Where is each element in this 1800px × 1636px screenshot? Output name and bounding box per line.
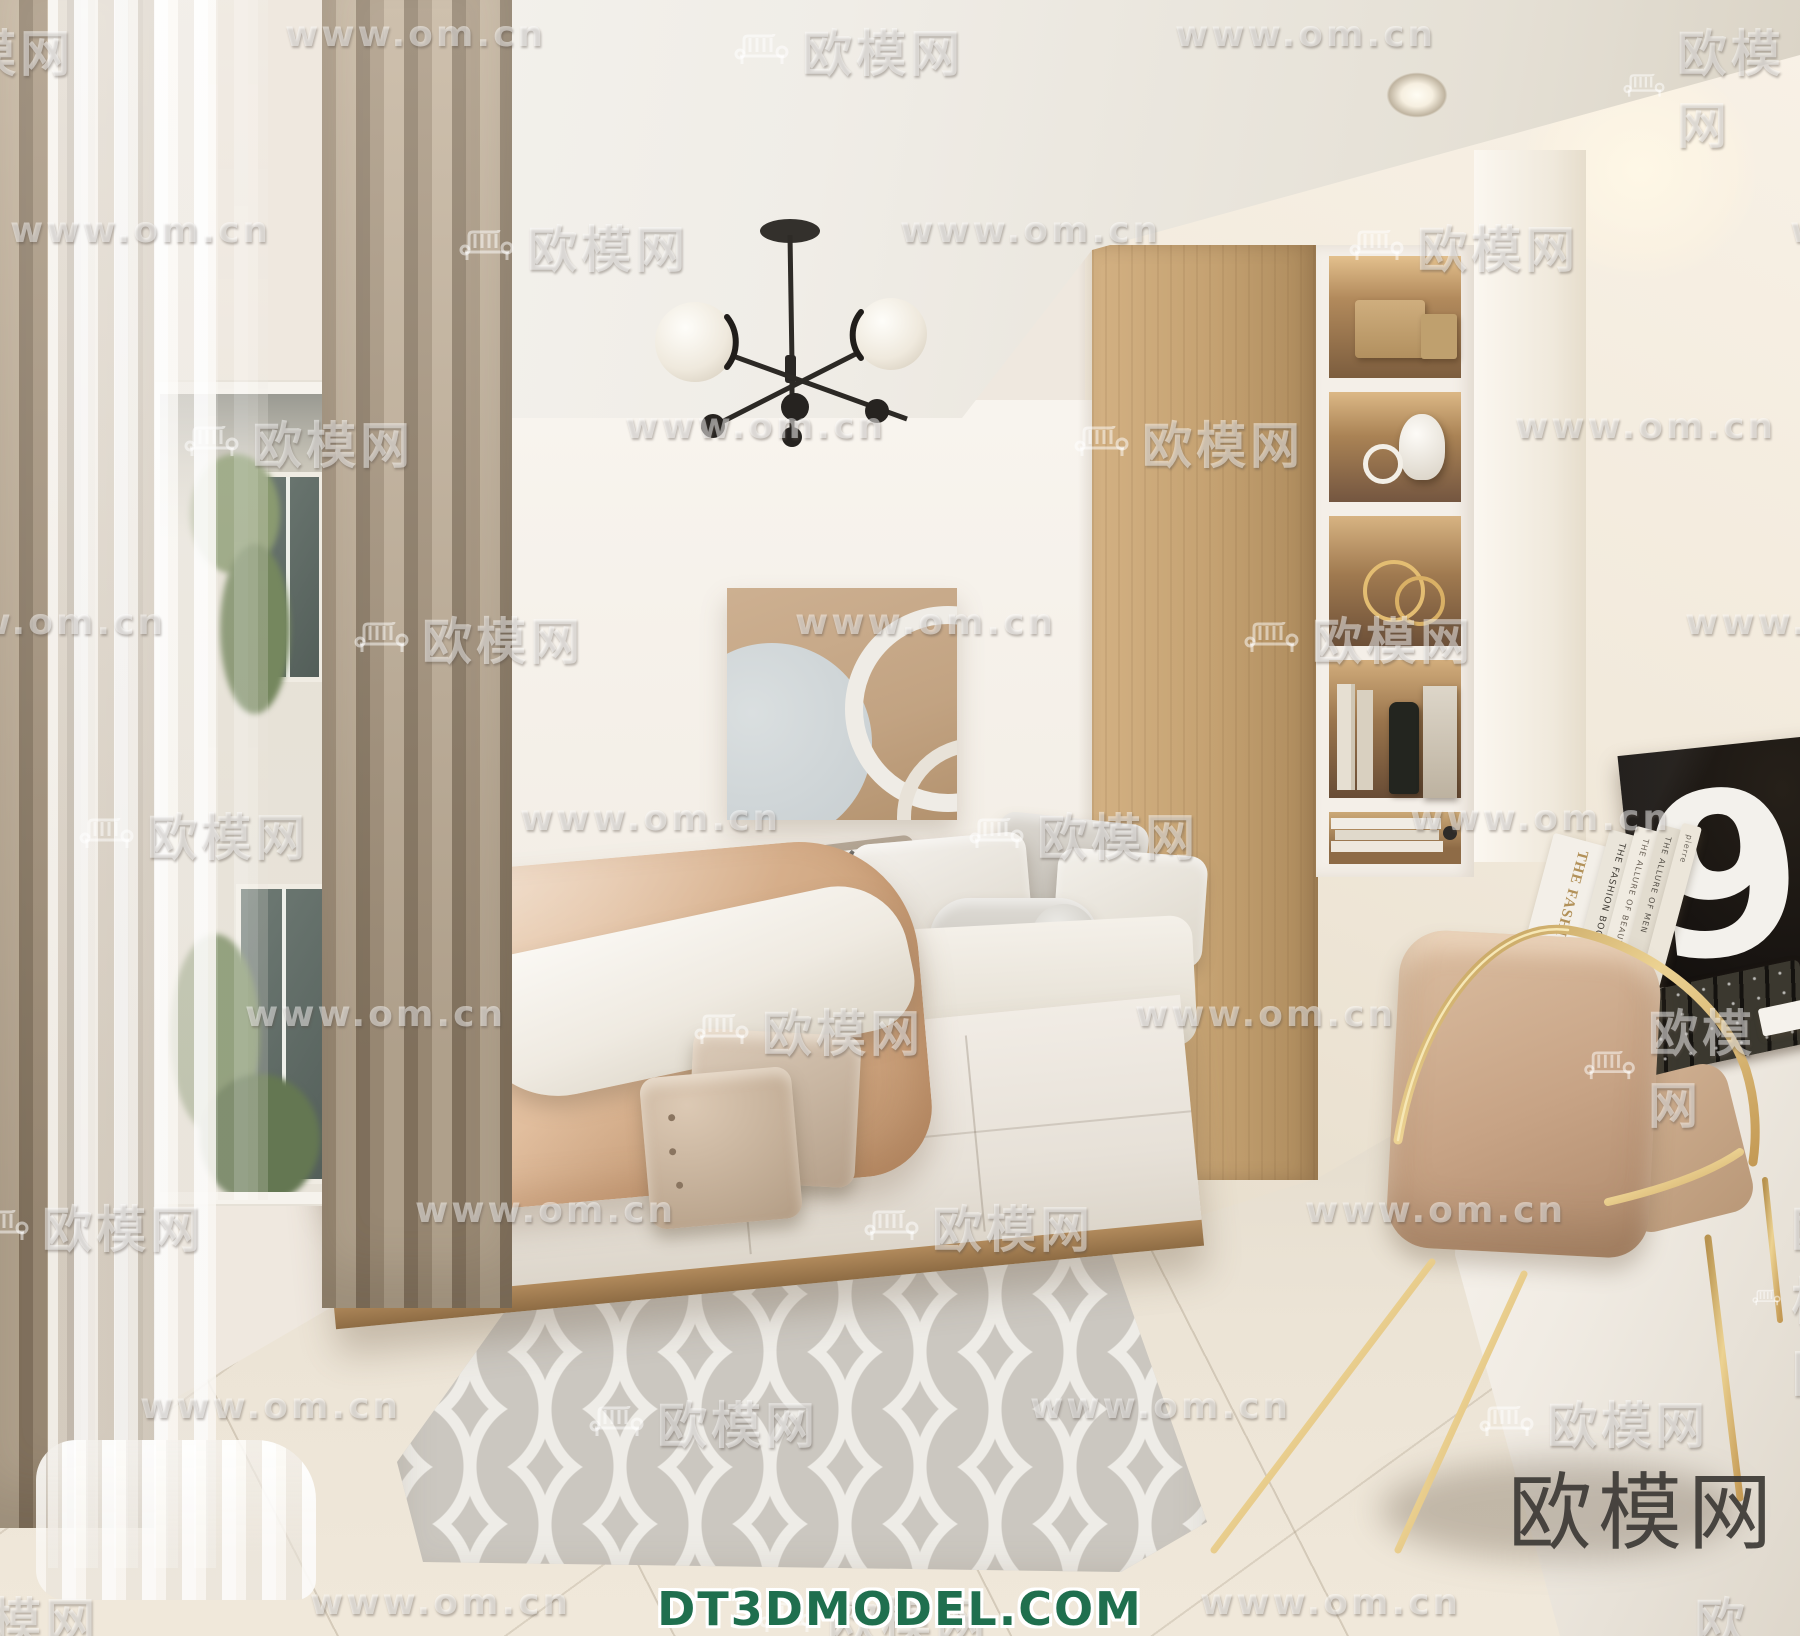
- cushion-button: [668, 1114, 676, 1122]
- dark-vase: [1389, 702, 1419, 794]
- shelf-cell-4: [1329, 660, 1461, 798]
- wall-art: [727, 588, 957, 820]
- shelf-cell-5: [1329, 812, 1461, 864]
- corner-watermark: 欧模网: [1508, 1446, 1778, 1567]
- stacked-book: [1331, 818, 1441, 829]
- decor-sphere: [1443, 826, 1457, 840]
- book-spine: [1337, 684, 1355, 790]
- chandelier: [555, 195, 935, 455]
- sculpture-bust: [1399, 414, 1445, 480]
- stacked-book: [1331, 841, 1443, 852]
- recessed-downlight: [1378, 66, 1456, 124]
- shelf-cell-2: [1329, 392, 1461, 502]
- art-magazine: [1423, 686, 1457, 798]
- decor-box: [1355, 300, 1425, 358]
- footer-site-text: DT3DMODEL.COM: [657, 1582, 1143, 1636]
- globe-bulb: [855, 298, 927, 370]
- gold-decor-icon: [1395, 576, 1445, 626]
- display-shelf: [1316, 245, 1474, 877]
- curtain-sheer-veil: [208, 0, 268, 1200]
- curtain-drape-right: [322, 0, 512, 1308]
- curtain-sheer-pool: [36, 1440, 316, 1600]
- globe-bulb: [655, 302, 735, 382]
- decor-ring: [1363, 444, 1403, 484]
- stacked-book: [1335, 830, 1439, 840]
- cushion-button: [676, 1181, 684, 1189]
- floor-cushion-front: [639, 1066, 804, 1231]
- book-spine: [1357, 690, 1373, 790]
- decor-box-small: [1421, 314, 1457, 359]
- bedroom-render: 9 4 PM ALIENWARE THE FASHION BOOK THE FA…: [0, 0, 1800, 1636]
- cushion-button: [669, 1148, 677, 1156]
- shelf-cell-1: [1329, 256, 1461, 378]
- book-title: pierre: [1678, 834, 1694, 865]
- shelf-cell-3: [1329, 516, 1461, 646]
- curtain-sheer: [48, 0, 216, 1568]
- wall-pillar: [1474, 150, 1586, 862]
